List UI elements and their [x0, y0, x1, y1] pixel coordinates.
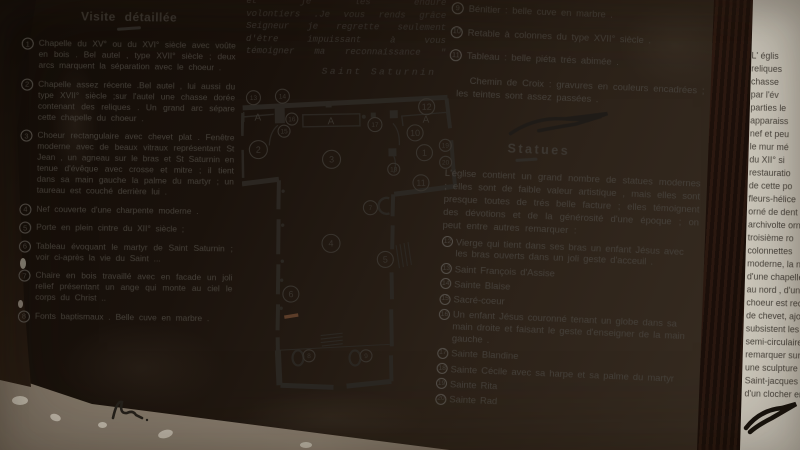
plan-label-3: 3 [322, 150, 340, 168]
plan-altar-letter: A [422, 115, 429, 126]
hand-underline [515, 157, 537, 161]
svg-text:7: 7 [369, 205, 373, 212]
fragment-line: de chevet, ajou [746, 309, 800, 323]
item-text: Chaire en bois travaillé avec en facade … [35, 270, 232, 303]
plan-label-12: 12 [419, 99, 435, 115]
plan-label-8: 8 [303, 350, 315, 362]
svg-text:10: 10 [410, 128, 420, 138]
section-title-visite: Visite détaillée [22, 9, 236, 26]
item-number-badge: 16 [439, 309, 450, 320]
fragment-line: colonnettes [747, 244, 800, 258]
svg-text:14: 14 [279, 93, 287, 100]
fragment-line: orné de dent [748, 205, 800, 219]
svg-text:12: 12 [422, 102, 432, 112]
fragment-line: subsistent les [746, 322, 800, 336]
visite-item: 4Nef couverte d'une charpente moderne . [19, 203, 233, 217]
fragment-line: Saint-jacques . Au [745, 374, 800, 388]
fragment-line: moderne, la n [747, 257, 800, 271]
fragment-line: apparaiss [750, 114, 800, 128]
svg-text:6: 6 [288, 289, 293, 299]
item-number-badge: 14 [440, 278, 451, 289]
svg-text:3: 3 [329, 154, 334, 164]
plan-label-1: 1 [416, 145, 432, 161]
item-number-badge: 5 [19, 222, 31, 234]
numbered-item: 10Retable à colonnes du type XVII° siècl… [450, 25, 706, 48]
chemin-de-croix-paragraph: Chemin de Croix : gravures en couleurs e… [448, 72, 705, 109]
item-number-badge: 11 [450, 49, 462, 61]
plan-c-mark [378, 198, 389, 214]
visite-item: 7Chaire en bois travaillé avec en facade… [18, 269, 232, 305]
handwritten-scribble-bottom-right [742, 398, 800, 438]
photo-of-information-board: Visite détaillée 1Chapelle du XV° ou du … [0, 0, 800, 450]
visite-item-list: 1Chapelle du XV° ou du XVI° siècle avec … [18, 38, 236, 324]
item-text: Sainte Rad [449, 394, 497, 407]
item-number-badge: 18 [436, 363, 447, 374]
item-text: Tableau évoquant le martyr de Saint Satu… [36, 240, 233, 263]
item-number-badge: 8 [18, 310, 30, 322]
quote-lines: et je les endurevolontiers .Je vous rend… [246, 0, 447, 60]
item-text: Sainte Rita [450, 378, 498, 391]
svg-text:4: 4 [328, 238, 333, 248]
visite-item: 1Chapelle du XV° ou du XVI° siècle avec … [21, 38, 235, 74]
item-number-badge: 6 [19, 240, 31, 252]
svg-text:16: 16 [288, 116, 296, 123]
fragment-line: parties le [750, 101, 800, 115]
handwritten-signature [105, 392, 160, 427]
item-number-badge: 9 [451, 2, 463, 14]
plan-label-9: 9 [360, 350, 372, 362]
fragment-line: de cette po [749, 179, 800, 193]
item-text: Saint François d'Assise [455, 263, 556, 278]
item-text: Chapelle assez récente .Bel autel , lui … [38, 78, 236, 122]
item-text: Retable à colonnes du type XVII° siècle … [468, 26, 652, 45]
handwritten-scribble [504, 103, 625, 146]
plan-label-4: 4 [322, 234, 340, 252]
numbered-item: 11Tableau : belle piéta trés abimée . [450, 49, 706, 72]
plan-smudge [284, 315, 298, 317]
fragment-line: choeur est recta [746, 296, 800, 310]
visite-item: 5Porte en plein cintre du XII° siècle ; [19, 222, 233, 236]
visite-detaillee-column: Visite détaillée 1Chapelle du XV° ou du … [18, 9, 236, 332]
item-text: Tableau : belle piéta trés abimée . [467, 50, 620, 67]
visite-item: 8Fonts baptismaux . Belle cuve en marbre… [18, 310, 232, 324]
svg-text:5: 5 [383, 255, 388, 265]
plan-label-10: 10 [407, 125, 423, 141]
fragment-line: une sculpture [745, 361, 800, 375]
fragment-line: au nord , d'une [747, 283, 800, 297]
visite-item: 2Chapelle assez récente .Bel autel , lui… [21, 78, 236, 125]
stone [12, 396, 28, 405]
fragment-line: nef et peu [750, 127, 800, 141]
item-text: Chapelle du XV° ou du XVI° siècle avec v… [38, 38, 235, 73]
item-number-badge: 12 [442, 236, 453, 247]
svg-text:15: 15 [280, 128, 288, 135]
plan-label-18: 18 [388, 163, 400, 175]
fragment-line: fleurs-hélice [748, 192, 800, 206]
plan-label-15: 15 [278, 125, 290, 137]
plan-walls [241, 97, 460, 389]
item-text: Sacré-coeur [453, 294, 504, 307]
plan-label-2: 2 [249, 140, 267, 158]
fragment-line: du XII° si [749, 153, 800, 167]
item-text: Un enfant Jésus couronné tenant un globe… [452, 309, 685, 345]
item-text: Sainte Blaise [454, 278, 511, 291]
plan-altar-letter: A [327, 116, 334, 127]
plan-details [244, 99, 453, 367]
fragment-line: chasse [751, 75, 800, 89]
item-number-badge: 2 [21, 78, 33, 90]
svg-text:8: 8 [307, 353, 311, 360]
fragment-line: restauratio [749, 166, 800, 180]
fragment-line: d'une chapelle [747, 270, 800, 284]
svg-text:2: 2 [256, 145, 261, 155]
fragment-line: archivolte orn [748, 218, 800, 232]
right-panel-text-fragments: L' églisreliqueschassepar l'évparties le… [744, 49, 800, 401]
item-text: Porte en plein cintre du XII° siècle ; [36, 222, 184, 234]
fragment-line: reliques [751, 62, 800, 76]
item-number-badge: 13 [441, 263, 452, 274]
quote-block: et je les endurevolontiers .Je vous rend… [246, 0, 447, 78]
plan-label-17: 17 [368, 117, 382, 131]
plan-label-14: 14 [275, 89, 289, 103]
hand-underline [117, 26, 141, 31]
fragment-line: le mur mé [750, 140, 800, 154]
svg-text:11: 11 [416, 178, 426, 188]
fragment-line: troisième ro [748, 231, 800, 245]
statues-column: 9Bénitier : belle cuve en marbre . 10Ret… [435, 2, 708, 419]
item-number-badge: 17 [437, 348, 448, 359]
item-text: Vierge qui tient dans ses bras un enfant… [455, 236, 684, 267]
quote-caption: Saint Saturnin [246, 64, 446, 77]
item-number-badge: 7 [18, 269, 30, 281]
church-floor-plan: 1234567891011121314151617181920AAA [240, 84, 463, 400]
plan-altar-letter: A [254, 113, 261, 124]
svg-text:18: 18 [390, 166, 398, 173]
svg-text:1: 1 [422, 148, 427, 158]
stone [300, 442, 312, 448]
item-number-badge: 15 [439, 293, 450, 304]
item-text: Nef couverte d'une charpente moderne . [36, 203, 198, 215]
item-number-badge: 20 [435, 393, 446, 404]
visite-item: 6Tableau évoquant le martyr de Saint Sat… [19, 240, 233, 265]
item-number-badge: 10 [451, 25, 463, 37]
fragment-line: par l'év [751, 88, 800, 102]
visite-item: 3Choeur rectangulaire avec chevet plat .… [20, 130, 235, 199]
statues-item-list: 12Vierge qui tient dans ses bras un enfa… [435, 235, 698, 415]
numbered-item-list: 9Bénitier : belle cuve en marbre . 10Ret… [450, 2, 708, 72]
item-number-badge: 1 [22, 38, 34, 50]
statues-intro-paragraph: L'église contient un grand nombre de sta… [442, 165, 700, 241]
svg-text:17: 17 [371, 122, 379, 129]
item-number-badge: 4 [19, 203, 31, 215]
item-number-badge: 19 [436, 378, 447, 389]
fragment-line: semi-circulaire [745, 335, 800, 349]
fragment-line: L' églis [751, 49, 800, 63]
item-number-badge: 3 [20, 130, 32, 142]
plan-label-5: 5 [377, 251, 393, 267]
quote-line: témoigner ma reconnaissance " [246, 45, 446, 60]
statue-item: 16Un enfant Jésus couronné tenant un glo… [438, 308, 695, 354]
plan-label-7: 7 [363, 201, 377, 215]
item-text: Choeur rectangulaire avec chevet plat . … [37, 130, 235, 197]
item-text: Sainte Blandine [451, 348, 519, 362]
plan-label-6: 6 [283, 286, 299, 302]
plan-label-13: 13 [246, 91, 260, 105]
item-text: Fonts baptismaux . Belle cuve en marbre … [35, 310, 209, 322]
svg-text:13: 13 [250, 95, 258, 102]
fragment-line: remarquer sur le [745, 348, 800, 362]
svg-text:9: 9 [364, 353, 368, 360]
plan-label-16: 16 [286, 113, 298, 125]
